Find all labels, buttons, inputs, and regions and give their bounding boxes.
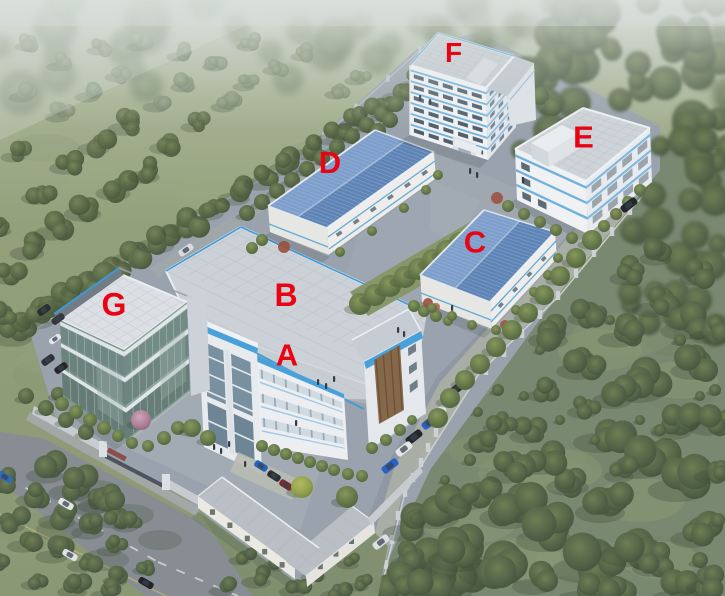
- svg-text:B: B: [274, 277, 297, 313]
- svg-text:A: A: [276, 338, 298, 373]
- svg-text:G: G: [102, 287, 127, 323]
- svg-text:E: E: [573, 120, 594, 155]
- svg-text:D: D: [319, 145, 341, 180]
- svg-text:C: C: [464, 225, 486, 260]
- svg-text:F: F: [445, 37, 462, 68]
